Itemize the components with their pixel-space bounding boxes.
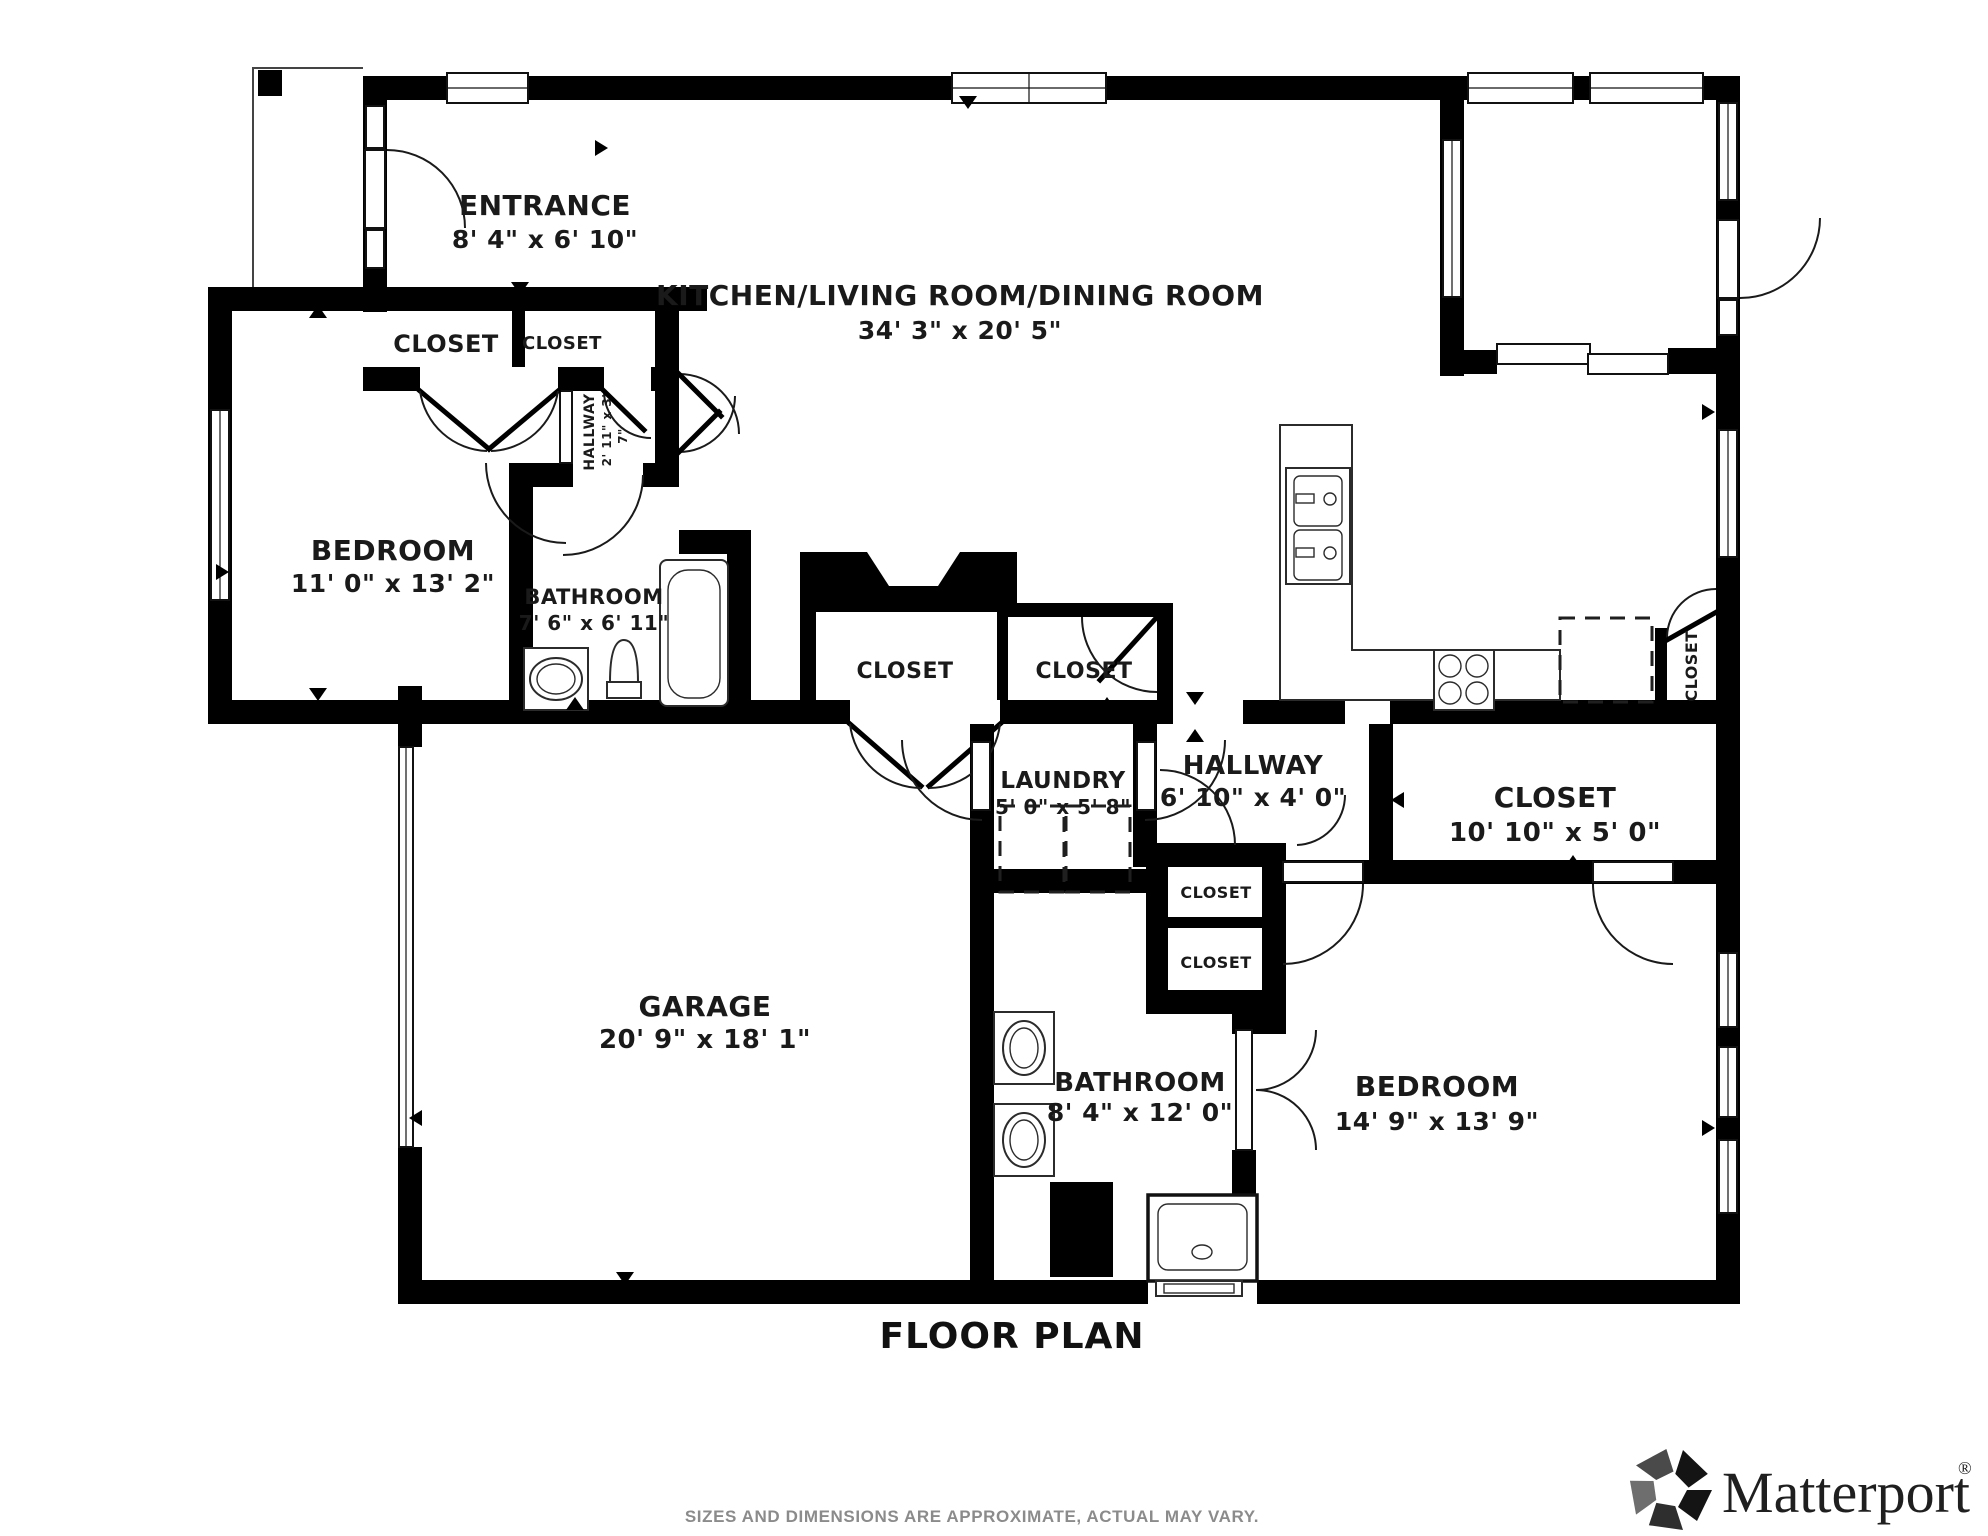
entrance-door <box>365 150 385 228</box>
room-dims-hall-small-1: 2' 11" x 3' <box>600 394 614 467</box>
bathroom-top-toilet <box>607 640 641 698</box>
closet-large-door <box>1593 862 1673 882</box>
room-dims-kitchen-living-dining: 34' 3" x 20' 5" <box>858 316 1062 345</box>
room-label-garage: GARAGE <box>639 990 772 1023</box>
room-label-entry-closet-right: CLOSET <box>522 333 602 354</box>
room-dims-bathroom-top: 7' 6" x 6' 11" <box>519 611 669 635</box>
room-label-entrance: ENTRANCE <box>459 189 631 222</box>
room-label-hallway-main: HALLWAY <box>1183 751 1324 781</box>
room-dims-laundry: 5' 0" x 5' 8" <box>995 795 1131 819</box>
room-label-bathroom-bottom: BATHROOM <box>1054 1068 1226 1098</box>
laundry-hallway-door <box>1137 742 1155 810</box>
bathroom-top-door <box>563 475 643 555</box>
disclaimer-text: SIZES AND DIMENSIONS ARE APPROXIMATE, AC… <box>685 1507 1259 1526</box>
page-title: FLOOR PLAN <box>879 1316 1144 1357</box>
room-dims-bedroom-left: 11' 0" x 13' 2" <box>291 569 495 598</box>
room-label-mid-closet-right: CLOSET <box>1036 659 1133 684</box>
room-label-hall-small: HALLWAY <box>582 393 598 471</box>
room-dims-hall-small-2: 7" <box>616 428 630 444</box>
porch-outline <box>253 68 363 287</box>
matterport-logo: Matterport ® <box>1618 1440 1972 1536</box>
room-dims-hallway-main: 6' 10" x 4' 0" <box>1160 783 1346 812</box>
room-label-entry-closet-left: CLOSET <box>393 330 499 358</box>
room-dims-closet-large: 10' 10" x 5' 0" <box>1449 818 1661 848</box>
bathroom-storage-massing <box>1050 1182 1113 1277</box>
shower <box>1148 1195 1257 1296</box>
room-label-small-closet-lower: CLOSET <box>1180 953 1251 972</box>
room-dims-bedroom-right: 14' 9" x 13' 9" <box>1335 1107 1539 1136</box>
sunroom-door <box>1718 220 1738 298</box>
room-dims-garage: 20' 9" x 18' 1" <box>599 1025 811 1055</box>
refrigerator-dashed <box>1560 618 1652 702</box>
vanity-sink-upper <box>994 1012 1054 1084</box>
porch-post <box>258 70 282 96</box>
kitchen-sink <box>1286 468 1350 584</box>
bedroom-left-door <box>560 391 572 463</box>
matterport-logo-text: Matterport <box>1722 1460 1970 1525</box>
room-label-small-closet-upper: CLOSET <box>1180 883 1251 902</box>
room-label-pantry-closet: CLOSET <box>1682 630 1701 701</box>
room-label-mid-closet-left: CLOSET <box>857 659 954 684</box>
matterport-pinwheel-icon <box>1618 1440 1713 1536</box>
matterport-registered-mark: ® <box>1958 1458 1972 1478</box>
room-dims-bathroom-bottom: 8' 4" x 12' 0" <box>1047 1098 1233 1127</box>
room-label-bathroom-top: BATHROOM <box>524 585 663 609</box>
floor-plan-canvas: ENTRANCE 8' 4" x 6' 10" KITCHEN/LIVING R… <box>0 0 1988 1536</box>
bedroom-right-door <box>1283 862 1363 882</box>
room-label-kitchen-living-dining: KITCHEN/LIVING ROOM/DINING ROOM <box>656 279 1264 312</box>
stove <box>1434 650 1494 710</box>
room-label-laundry: LAUNDRY <box>1000 768 1125 794</box>
room-label-closet-large: CLOSET <box>1494 781 1617 814</box>
room-dims-entrance: 8' 4" x 6' 10" <box>452 225 638 254</box>
room-label-bedroom-right: BEDROOM <box>1355 1070 1519 1103</box>
vanity-sink-lower <box>994 1104 1054 1176</box>
room-label-bedroom-left: BEDROOM <box>311 534 475 567</box>
bathtub <box>660 560 728 706</box>
laundry-garage-door <box>972 742 990 810</box>
bathroom-bottom-double-doors <box>1236 1030 1252 1150</box>
